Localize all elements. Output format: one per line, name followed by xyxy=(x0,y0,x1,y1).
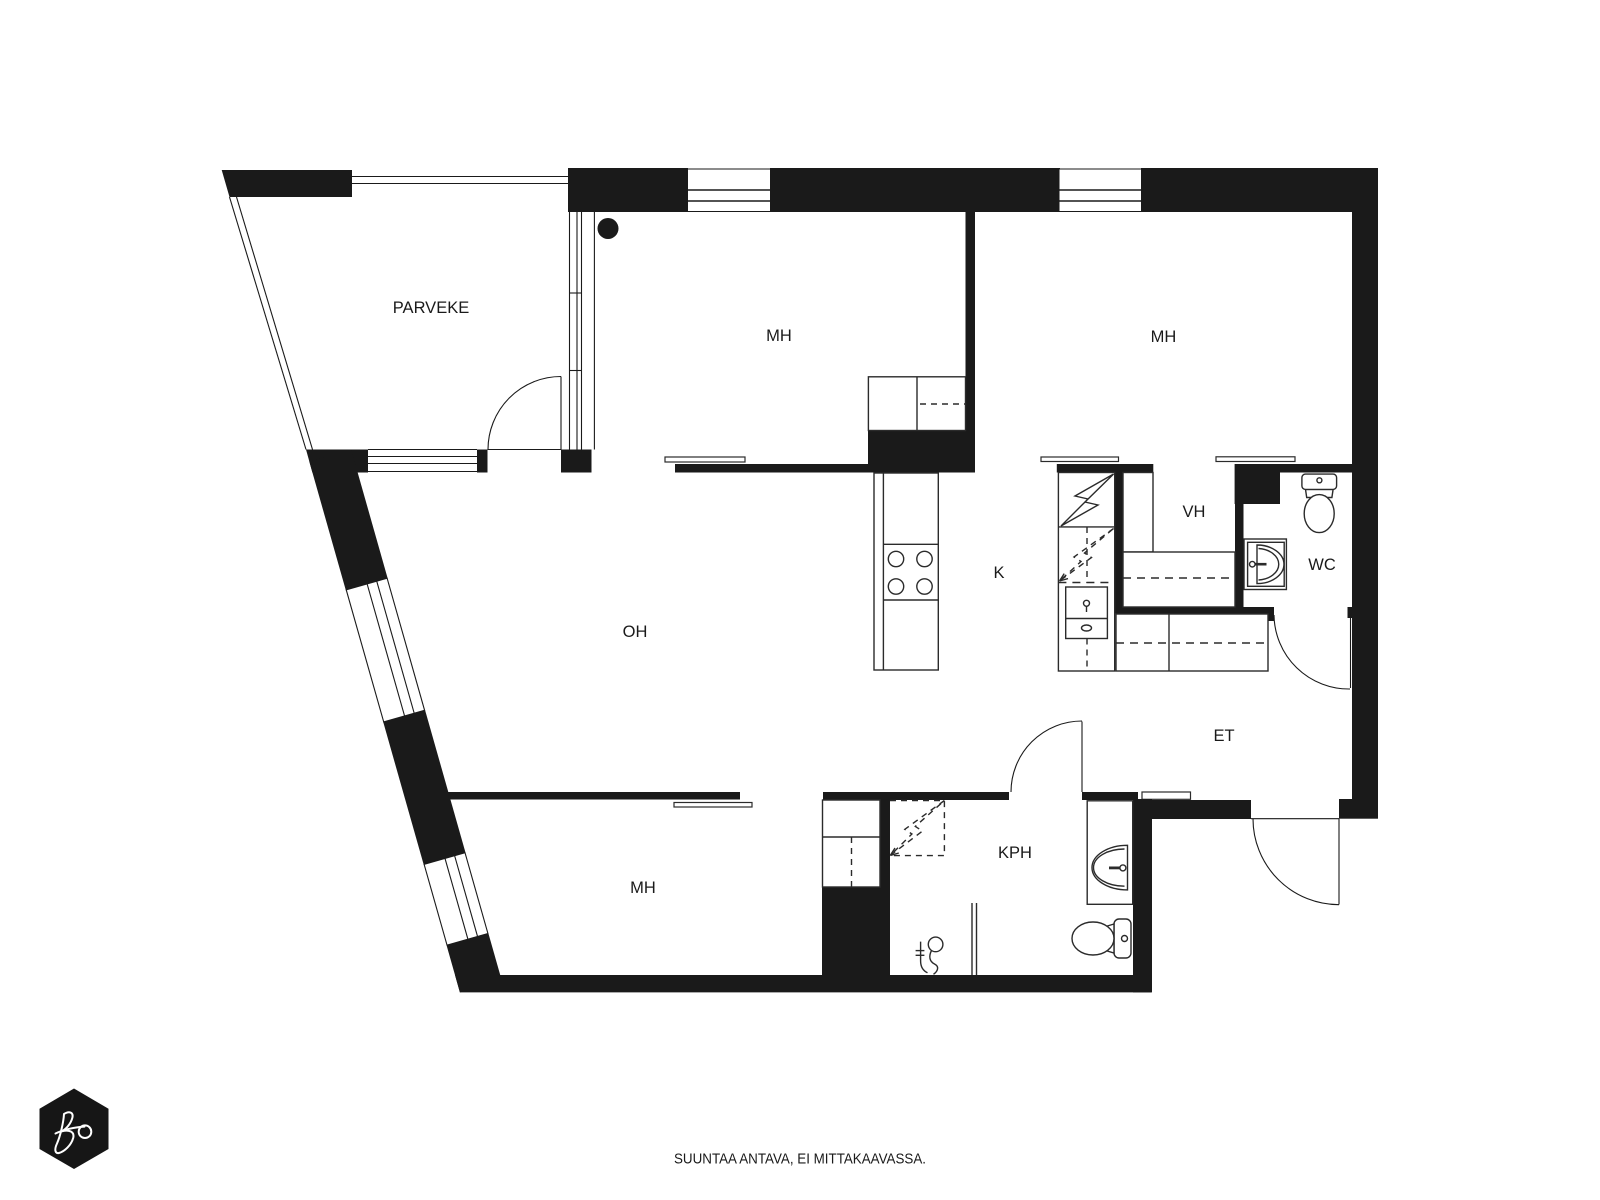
svg-text:MH: MH xyxy=(1151,328,1177,346)
svg-text:MH: MH xyxy=(630,879,656,897)
svg-text:VH: VH xyxy=(1183,503,1206,521)
svg-text:ET: ET xyxy=(1213,727,1234,745)
svg-text:PARVEKE: PARVEKE xyxy=(393,299,469,317)
svg-text:SUUNTAA ANTAVA, EI MITTAKAAVAS: SUUNTAA ANTAVA, EI MITTAKAAVASSA. xyxy=(674,1152,926,1168)
svg-text:K: K xyxy=(993,564,1004,582)
svg-text:OH: OH xyxy=(623,623,648,641)
svg-text:MH: MH xyxy=(766,327,792,345)
svg-text:KPH: KPH xyxy=(998,844,1032,862)
svg-text:WC: WC xyxy=(1308,556,1336,574)
